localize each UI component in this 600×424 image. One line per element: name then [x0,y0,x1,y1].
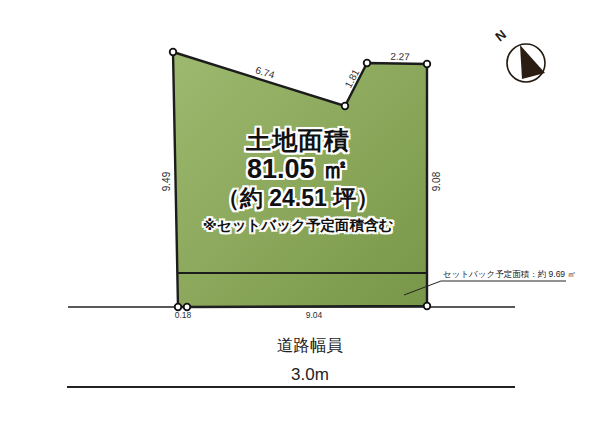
land-plot-diagram: 6.74 1.81 2.27 9.49 9.08 0.18 9.04 土地面積 … [0,0,600,424]
land-area-tsubo: （約 24.51 坪） [170,185,426,213]
dimension-bottom-offset: 0.18 [168,310,198,320]
dimension-right-edge: 9.08 [431,162,442,202]
land-area-title: 土地面積 [170,126,426,154]
land-area-square-meters: 81.05 ㎡ [170,154,426,185]
dimension-frontage: 9.04 [294,310,334,320]
vertex-marker [170,49,177,56]
road-width-value: 3.0m [240,365,380,385]
land-area-text-block: 土地面積 81.05 ㎡ （約 24.51 坪） ※セットバック予定面積含む [170,126,426,234]
vertex-marker [342,103,349,110]
road-width-label: 道路幅員 [240,335,380,357]
land-area-note: ※セットバック予定面積含む [170,216,426,235]
vertex-marker [424,61,431,68]
setback-area-note: セットバック予定面積：約 9.69 ㎡ [443,269,576,281]
dimension-top-right-edge: 2.27 [380,50,420,62]
vertex-marker [424,303,431,310]
